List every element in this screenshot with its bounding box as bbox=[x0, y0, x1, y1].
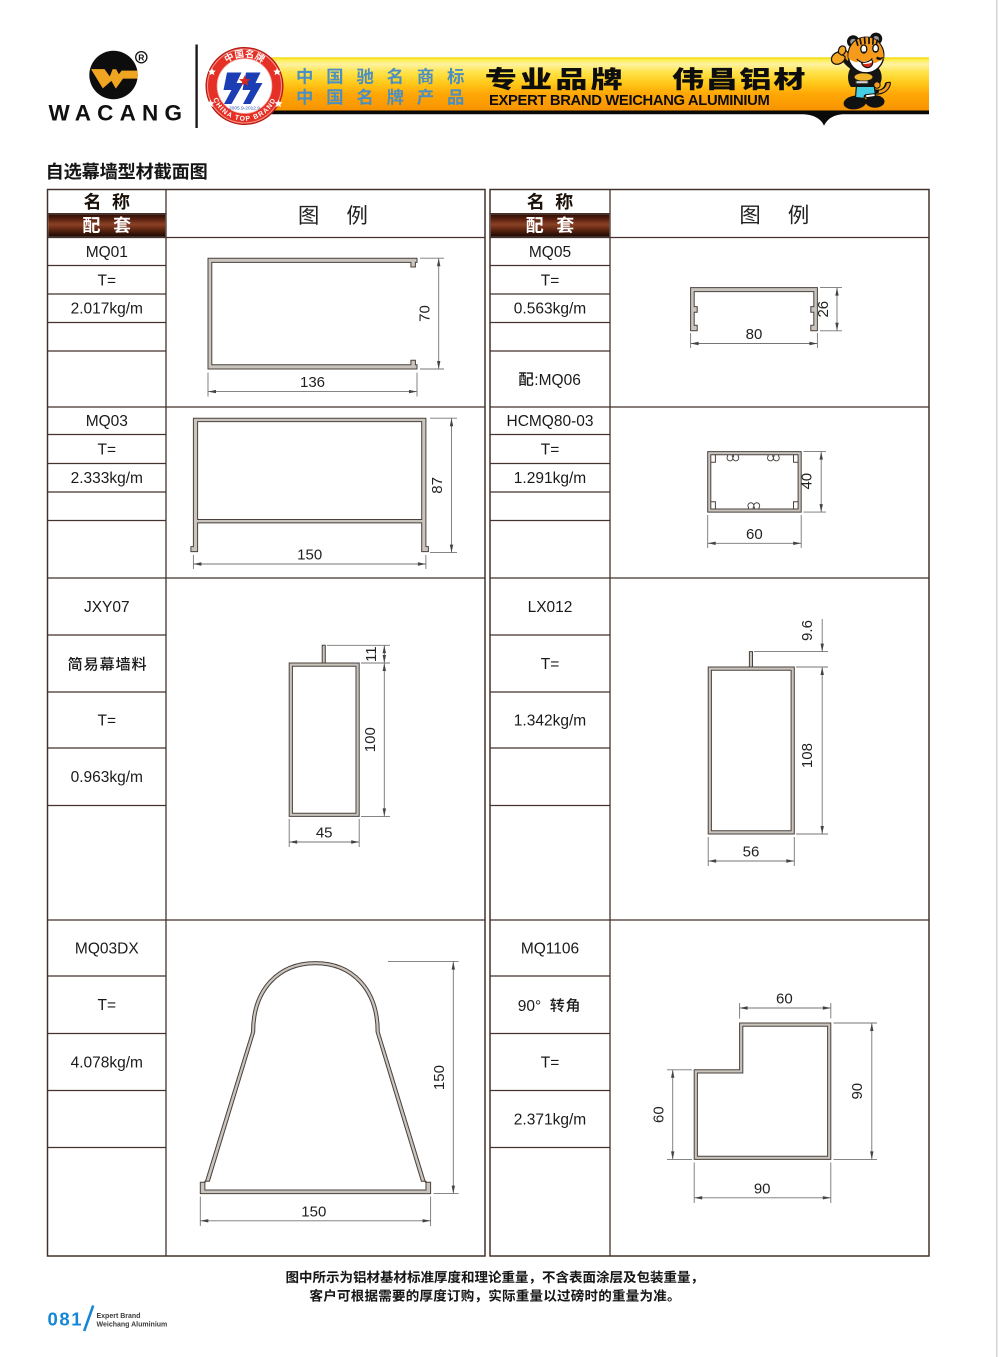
svg-text:45: 45 bbox=[316, 825, 333, 842]
svg-text:90°: 90° bbox=[518, 998, 541, 1015]
svg-text:100: 100 bbox=[362, 727, 379, 752]
svg-text:2.371kg/m: 2.371kg/m bbox=[514, 1111, 586, 1128]
svg-text:T=: T= bbox=[98, 997, 117, 1014]
svg-text:T=: T= bbox=[541, 656, 560, 673]
svg-text:JXY07: JXY07 bbox=[84, 599, 130, 616]
svg-text:MQ01: MQ01 bbox=[86, 244, 128, 261]
svg-text:T=: T= bbox=[541, 1054, 560, 1071]
svg-text:4.078kg/m: 4.078kg/m bbox=[71, 1054, 143, 1071]
svg-text:2.333kg/m: 2.333kg/m bbox=[71, 470, 143, 487]
svg-text:1.291kg/m: 1.291kg/m bbox=[514, 470, 586, 487]
svg-text:2.017kg/m: 2.017kg/m bbox=[71, 301, 143, 318]
svg-text::MQ06: :MQ06 bbox=[534, 372, 581, 389]
svg-text:80: 80 bbox=[746, 326, 763, 343]
svg-text:87: 87 bbox=[429, 477, 446, 494]
svg-text:26: 26 bbox=[815, 301, 832, 318]
svg-text:MQ03DX: MQ03DX bbox=[75, 940, 139, 957]
svg-text:9.6: 9.6 bbox=[799, 620, 816, 641]
svg-text:150: 150 bbox=[431, 1065, 448, 1090]
svg-text:R: R bbox=[138, 52, 144, 62]
svg-text:081: 081 bbox=[48, 1309, 84, 1330]
svg-text:150: 150 bbox=[297, 547, 322, 564]
svg-text:T=: T= bbox=[98, 272, 117, 289]
svg-text:MQ05: MQ05 bbox=[529, 244, 571, 261]
svg-text:0.963kg/m: 0.963kg/m bbox=[71, 769, 143, 786]
svg-text:MQ03: MQ03 bbox=[86, 413, 128, 430]
svg-text:1.342kg/m: 1.342kg/m bbox=[514, 712, 586, 729]
svg-text:T=: T= bbox=[541, 272, 560, 289]
svg-text:136: 136 bbox=[300, 374, 325, 391]
svg-text:40: 40 bbox=[799, 473, 816, 490]
svg-text:2005.9-2012.9: 2005.9-2012.9 bbox=[229, 106, 260, 112]
svg-text:LX012: LX012 bbox=[528, 599, 573, 616]
svg-text:150: 150 bbox=[301, 1203, 326, 1220]
svg-text:11: 11 bbox=[363, 646, 380, 662]
svg-text:0.563kg/m: 0.563kg/m bbox=[514, 301, 586, 318]
svg-text:90: 90 bbox=[754, 1180, 771, 1197]
svg-text:60: 60 bbox=[746, 526, 763, 543]
svg-text:MQ1106: MQ1106 bbox=[521, 940, 579, 957]
svg-text:Weichang Aluminium: Weichang Aluminium bbox=[97, 1322, 168, 1329]
svg-text:T=: T= bbox=[541, 441, 560, 458]
svg-text:60: 60 bbox=[650, 1106, 667, 1123]
svg-text:T=: T= bbox=[98, 441, 117, 458]
svg-text:WACANG: WACANG bbox=[49, 101, 189, 126]
svg-text:108: 108 bbox=[799, 743, 816, 768]
svg-text:T=: T= bbox=[98, 712, 117, 729]
svg-text:HCMQ80-03: HCMQ80-03 bbox=[507, 413, 594, 430]
svg-text:Expert Brand: Expert Brand bbox=[97, 1313, 141, 1320]
svg-text:70: 70 bbox=[417, 305, 434, 322]
svg-text:60: 60 bbox=[776, 991, 793, 1008]
svg-text:90: 90 bbox=[849, 1083, 866, 1100]
svg-text:56: 56 bbox=[743, 844, 760, 861]
svg-text:EXPERT BRAND WEICHANG ALUMINIU: EXPERT BRAND WEICHANG ALUMINIUM bbox=[489, 93, 769, 109]
